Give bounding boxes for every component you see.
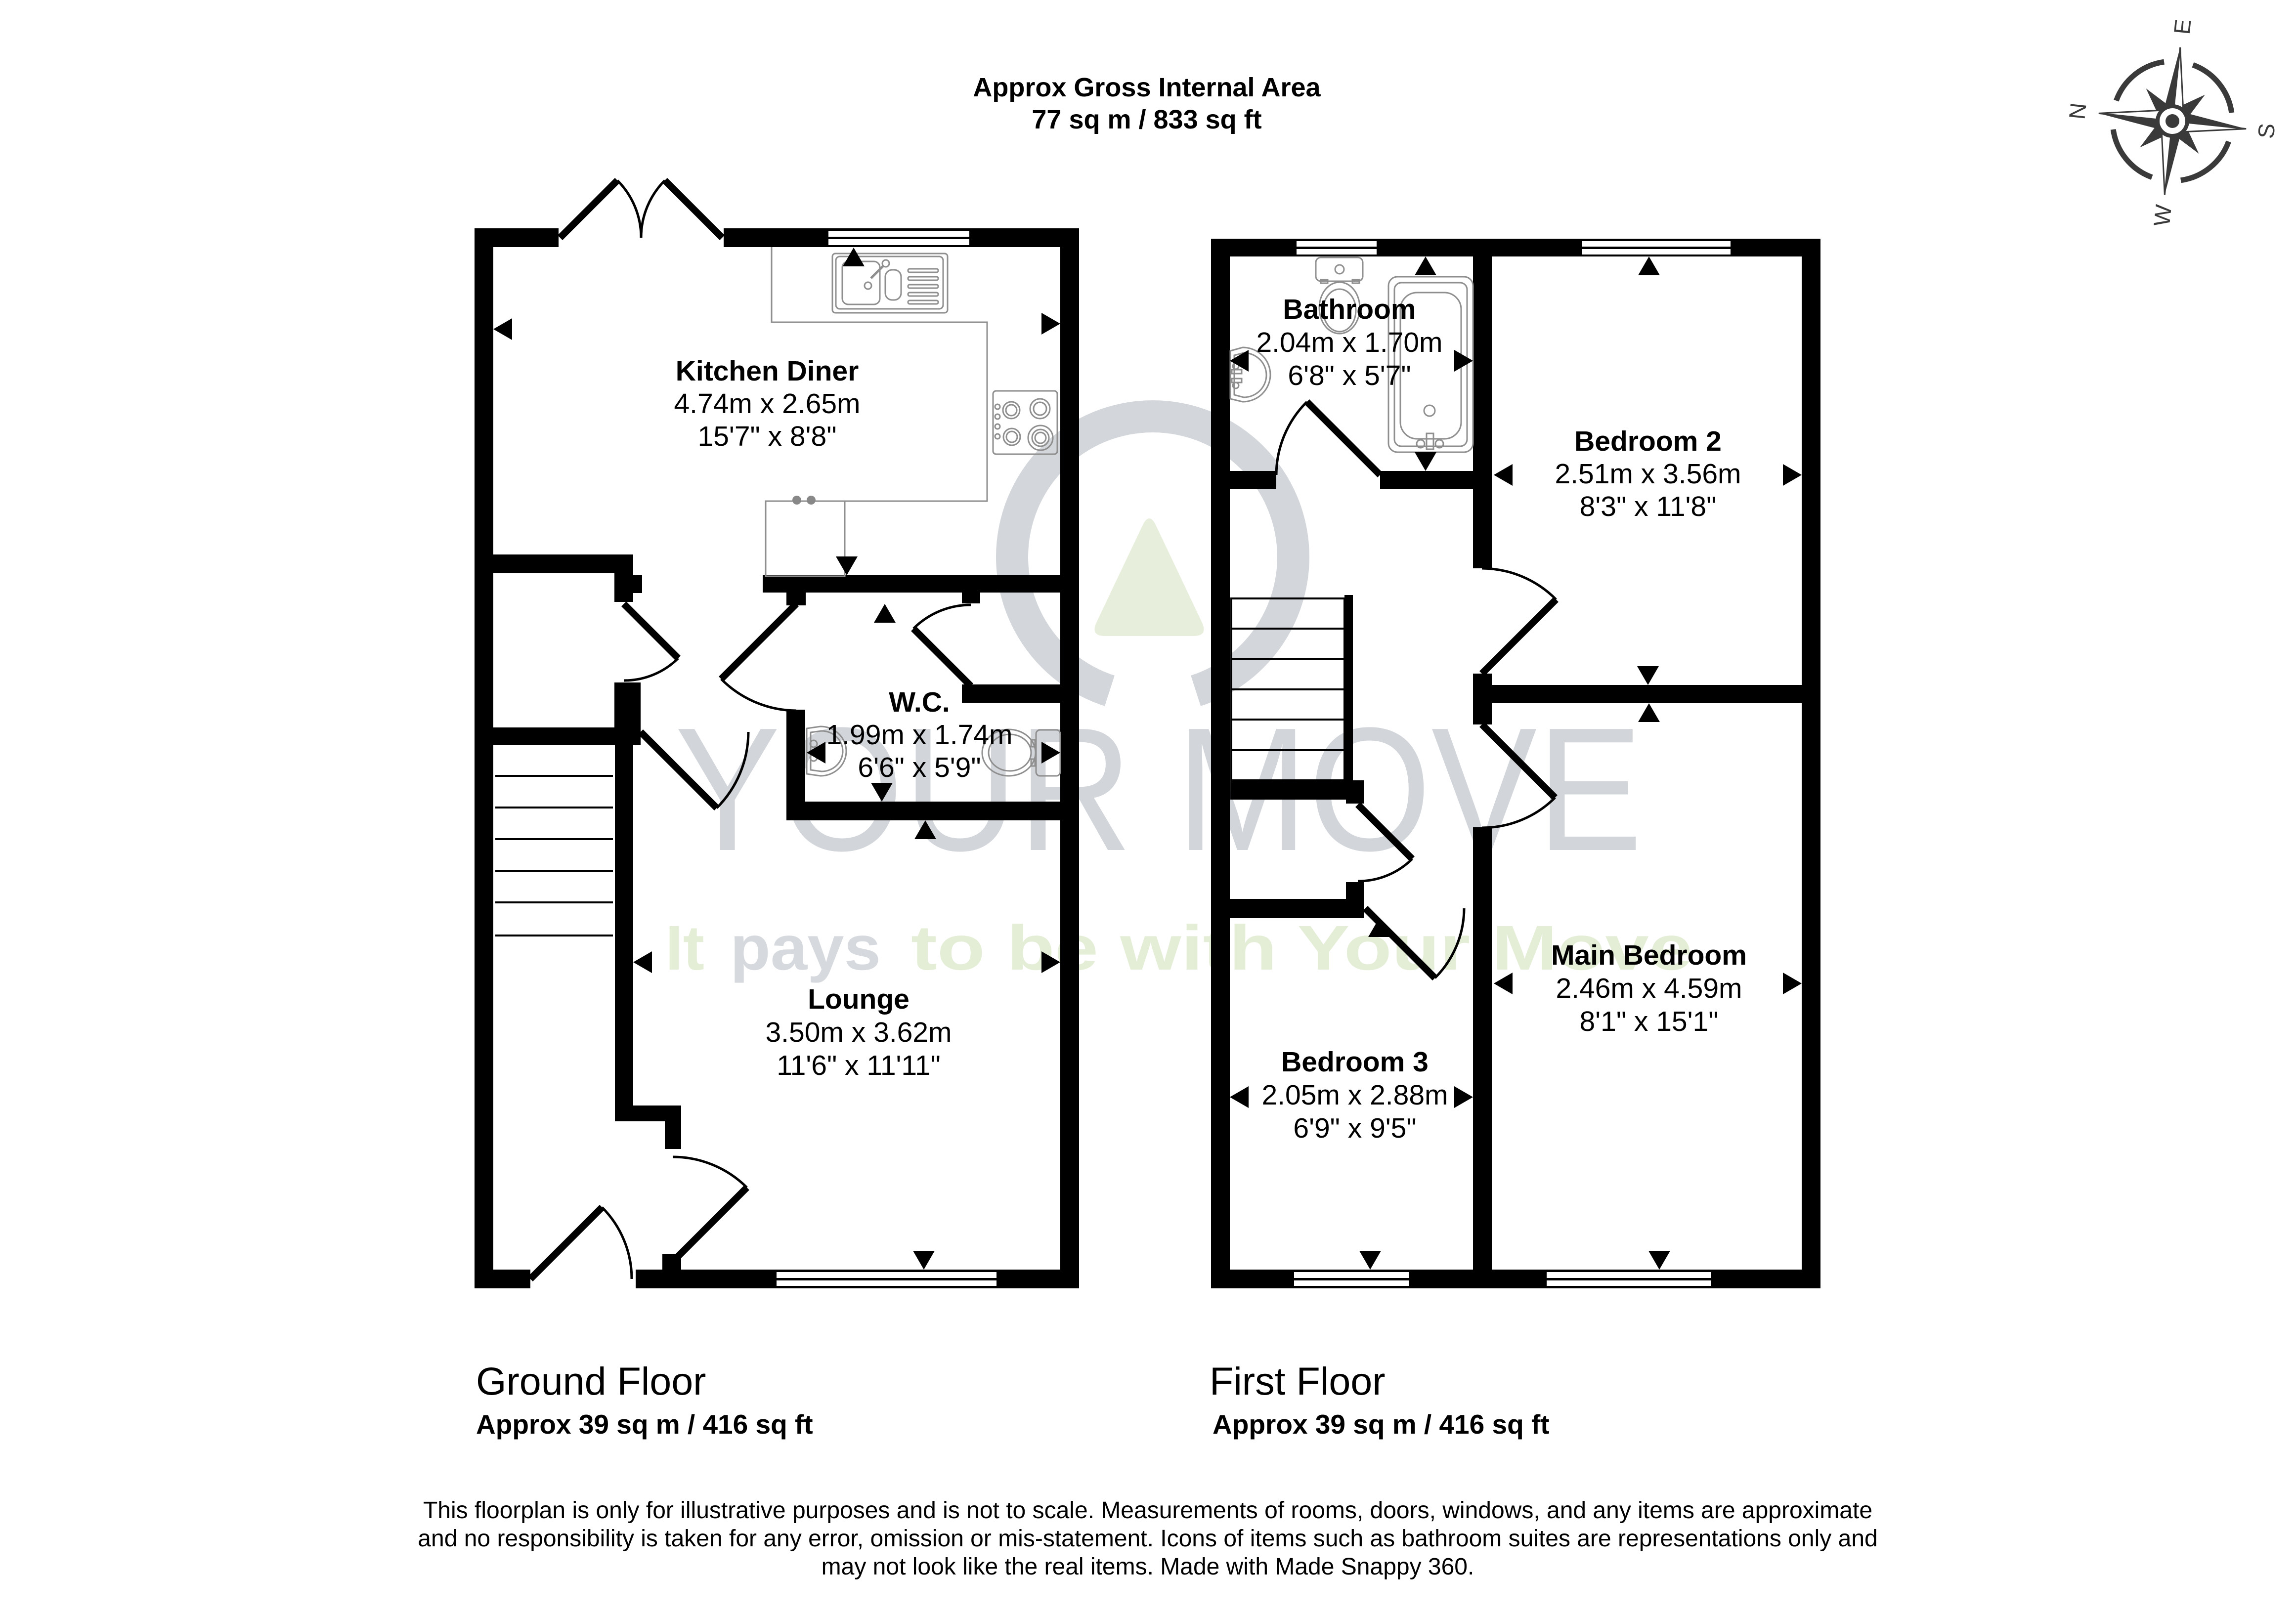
svg-text:2.51m x 3.56m: 2.51m x 3.56m bbox=[1555, 458, 1741, 490]
svg-text:N: N bbox=[2064, 102, 2091, 121]
svg-text:8'1" x 15'1": 8'1" x 15'1" bbox=[1580, 1006, 1719, 1037]
svg-text:6'8" x 5'7": 6'8" x 5'7" bbox=[1288, 360, 1411, 391]
svg-text:3.50m x 3.62m: 3.50m x 3.62m bbox=[765, 1017, 952, 1048]
svg-text:It: It bbox=[665, 913, 704, 983]
svg-text:2.04m x 1.70m: 2.04m x 1.70m bbox=[1256, 327, 1442, 358]
svg-text:W: W bbox=[2149, 203, 2176, 227]
svg-text:Lounge: Lounge bbox=[808, 983, 910, 1015]
svg-text:Approx 39 sq m / 416 sq ft: Approx 39 sq m / 416 sq ft bbox=[476, 1409, 813, 1440]
svg-text:1.99m x 1.74m: 1.99m x 1.74m bbox=[826, 719, 1012, 751]
svg-text:Bedroom 3: Bedroom 3 bbox=[1281, 1046, 1429, 1078]
svg-text:2.05m x 2.88m: 2.05m x 2.88m bbox=[1261, 1079, 1448, 1111]
svg-text:First Floor: First Floor bbox=[1210, 1359, 1386, 1403]
svg-text:YOUR MOVE: YOUR MOVE bbox=[675, 691, 1643, 888]
svg-text:may not look like the real ite: may not look like the real items. Made w… bbox=[822, 1554, 1474, 1580]
svg-text:S: S bbox=[2253, 122, 2280, 140]
svg-text:Approx Gross Internal Area: Approx Gross Internal Area bbox=[973, 73, 1321, 102]
svg-text:Main Bedroom: Main Bedroom bbox=[1551, 939, 1747, 971]
svg-text:Ground Floor: Ground Floor bbox=[476, 1359, 706, 1403]
svg-text:pays: pays bbox=[730, 913, 881, 983]
svg-text:77 sq m / 833 sq ft: 77 sq m / 833 sq ft bbox=[1032, 105, 1261, 134]
svg-text:W.C.: W.C. bbox=[889, 686, 950, 718]
svg-text:4.74m x 2.65m: 4.74m x 2.65m bbox=[674, 388, 860, 420]
svg-text:15'7" x 8'8": 15'7" x 8'8" bbox=[698, 421, 837, 452]
svg-text:6'6" x 5'9": 6'6" x 5'9" bbox=[858, 752, 981, 783]
svg-text:and no responsibility is taken: and no responsibility is taken for any e… bbox=[418, 1526, 1877, 1552]
svg-text:E: E bbox=[2169, 18, 2196, 36]
svg-text:11'6" x 11'11": 11'6" x 11'11" bbox=[777, 1050, 941, 1081]
svg-text:2.46m x 4.59m: 2.46m x 4.59m bbox=[1556, 973, 1742, 1004]
svg-text:Bedroom 2: Bedroom 2 bbox=[1574, 425, 1722, 457]
svg-text:Bathroom: Bathroom bbox=[1283, 294, 1416, 325]
svg-text:This floorplan is only for ill: This floorplan is only for illustrative … bbox=[423, 1497, 1872, 1524]
svg-text:Kitchen Diner: Kitchen Diner bbox=[676, 355, 859, 387]
svg-text:8'3" x 11'8": 8'3" x 11'8" bbox=[1580, 491, 1717, 522]
svg-text:Approx 39 sq m / 416 sq ft: Approx 39 sq m / 416 sq ft bbox=[1213, 1409, 1550, 1440]
svg-text:6'9" x 9'5": 6'9" x 9'5" bbox=[1293, 1112, 1416, 1144]
